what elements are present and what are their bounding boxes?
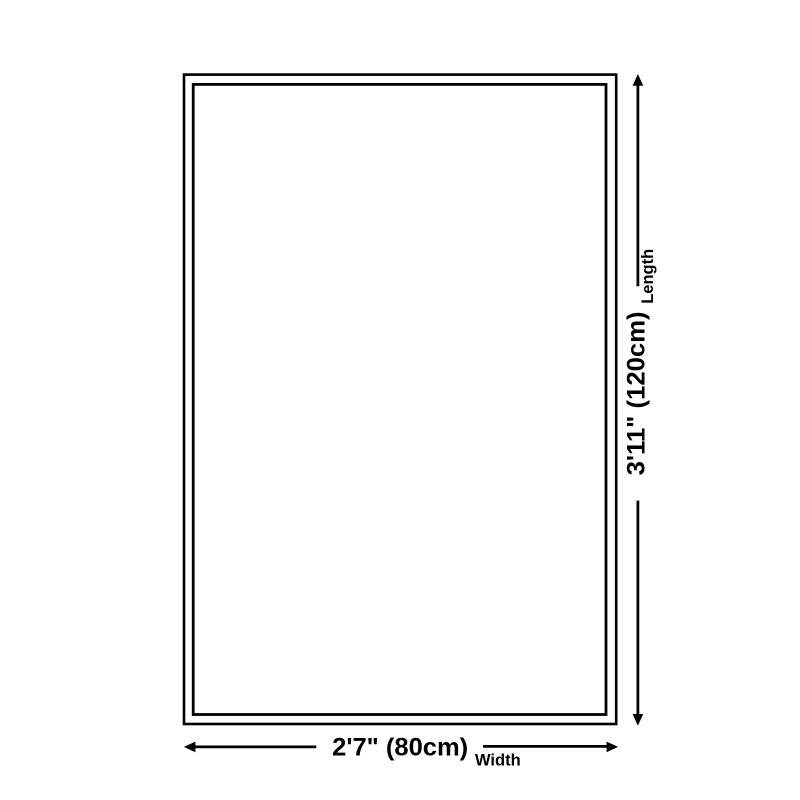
svg-text:Length: Length [639, 249, 657, 304]
svg-text:3'11" (120cm): 3'11" (120cm) [622, 311, 650, 475]
svg-text:2'7" (80cm): 2'7" (80cm) [332, 734, 468, 762]
svg-text:Width: Width [475, 752, 521, 770]
